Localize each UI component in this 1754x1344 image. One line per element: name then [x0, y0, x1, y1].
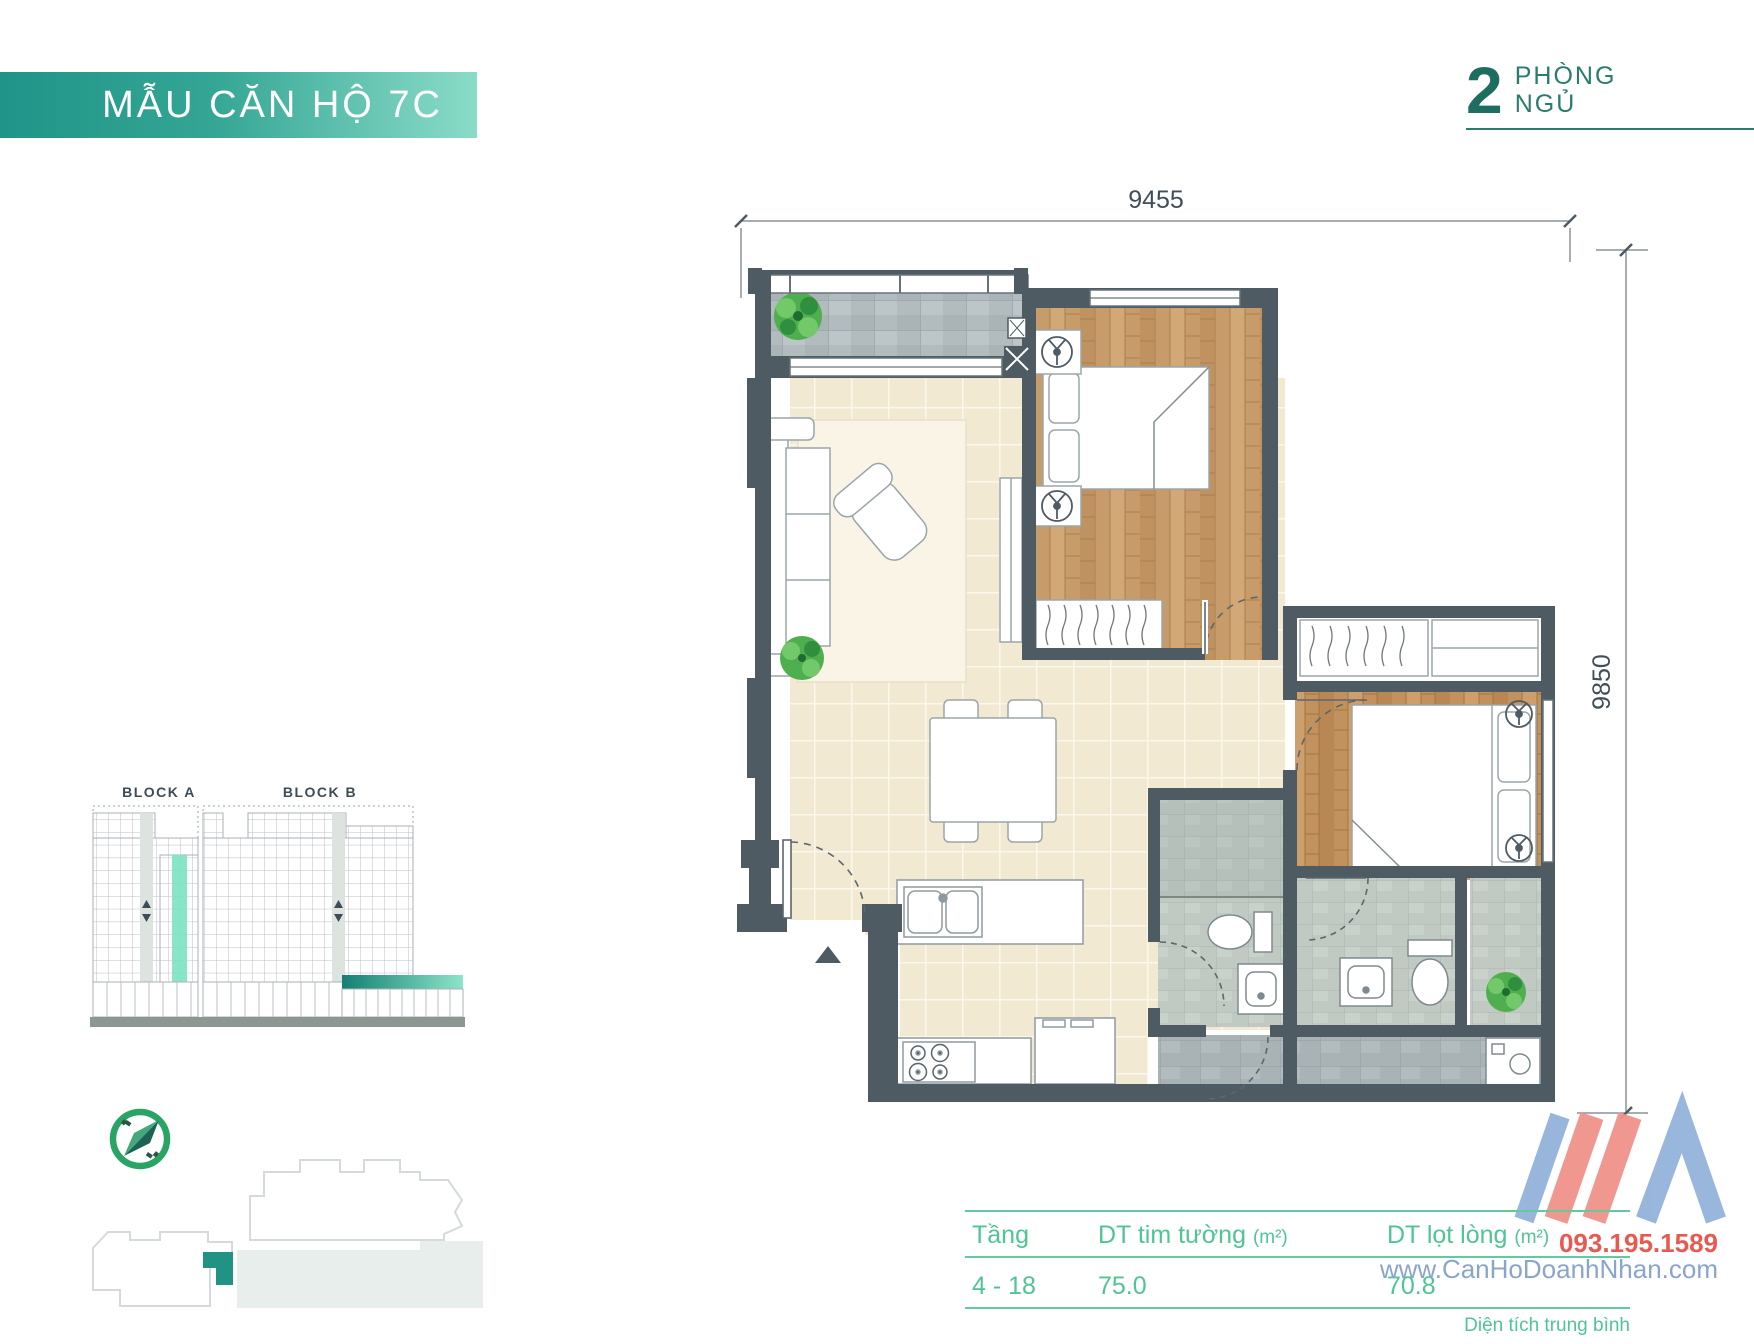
bedrooms-count: 2 — [1466, 58, 1503, 122]
plant-living — [780, 636, 824, 680]
table-rule-top — [965, 1210, 1630, 1212]
page-title-banner: MẪU CĂN HỘ 7C — [0, 72, 477, 138]
plant-service — [1486, 972, 1526, 1012]
block-b-label: BLOCK B — [283, 784, 357, 800]
compass-icon — [113, 1112, 167, 1166]
dining-set — [930, 700, 1056, 842]
ground-bar — [90, 1017, 465, 1027]
watermark-logo — [1524, 1116, 1716, 1220]
col-header-gross-area: DT tim tường (m²) — [1098, 1221, 1288, 1250]
bed-double-2 — [1352, 705, 1536, 871]
vanity-sink-1 — [1238, 964, 1284, 1014]
col-header-floor: Tầng — [972, 1221, 1029, 1250]
floor-plan: 9455 9850 — [735, 186, 1648, 1119]
bedroom2-window — [1543, 700, 1553, 862]
block-b-teal-band — [342, 975, 463, 989]
balcony-railing — [750, 275, 1028, 293]
stove — [903, 1042, 975, 1082]
bedrooms-badge: 2 PHÒNG NGỦ — [1466, 58, 1754, 130]
block-elevation-diagram: BLOCK A BLOCK B — [90, 784, 465, 1027]
dim-width-label: 9455 — [1128, 186, 1184, 214]
page-title: MẪU CĂN HỘ 7C — [102, 84, 443, 127]
plant-balcony — [774, 292, 822, 340]
table-rule-bottom — [965, 1307, 1630, 1309]
toilet-2 — [1408, 940, 1452, 1005]
vanity-sink-2 — [1340, 958, 1392, 1006]
bedrooms-underline — [1466, 128, 1754, 130]
brochure-page: 9455 9850 BLOCK A BLOCK B — [0, 0, 1754, 1344]
entry-arrow — [815, 946, 841, 963]
wardrobe-1 — [1036, 600, 1162, 650]
bed-double-1 — [1043, 367, 1209, 489]
site-key-plan — [93, 1160, 483, 1308]
floor-plan-canvas: 9455 9850 BLOCK A BLOCK B — [0, 0, 1754, 1344]
block-a — [93, 813, 198, 1017]
dim-height-label: 9850 — [1588, 654, 1616, 710]
refrigerator — [1035, 1018, 1115, 1084]
col-header-net-area: DT lọt lòng (m²) — [1387, 1221, 1549, 1250]
block-a-label: BLOCK A — [122, 784, 196, 800]
unit-stack-highlight — [172, 855, 187, 982]
washer — [1486, 1038, 1540, 1086]
kitchen-sink — [904, 887, 982, 937]
dining-table — [930, 718, 1056, 822]
block-b — [203, 813, 463, 1017]
bedrooms-word-2: NGỦ — [1515, 90, 1617, 118]
cell-floor-range: 4 - 18 — [972, 1272, 1036, 1301]
tower-b-outline — [250, 1160, 462, 1240]
closet-2 — [1300, 620, 1538, 676]
bathroom1-shower-zone — [1158, 796, 1287, 896]
cell-gross-area: 75.0 — [1098, 1272, 1147, 1301]
bedrooms-word-1: PHÒNG — [1515, 62, 1617, 90]
elevator-core-b — [332, 813, 345, 982]
table-footnote: Diện tích trung bình — [1464, 1315, 1630, 1337]
tower-a-outline — [93, 1232, 232, 1306]
toilet-1 — [1208, 912, 1272, 952]
elevator-core-a — [140, 813, 153, 982]
watermark-website: www.CanHoDoanhNhan.com — [1380, 1254, 1718, 1285]
